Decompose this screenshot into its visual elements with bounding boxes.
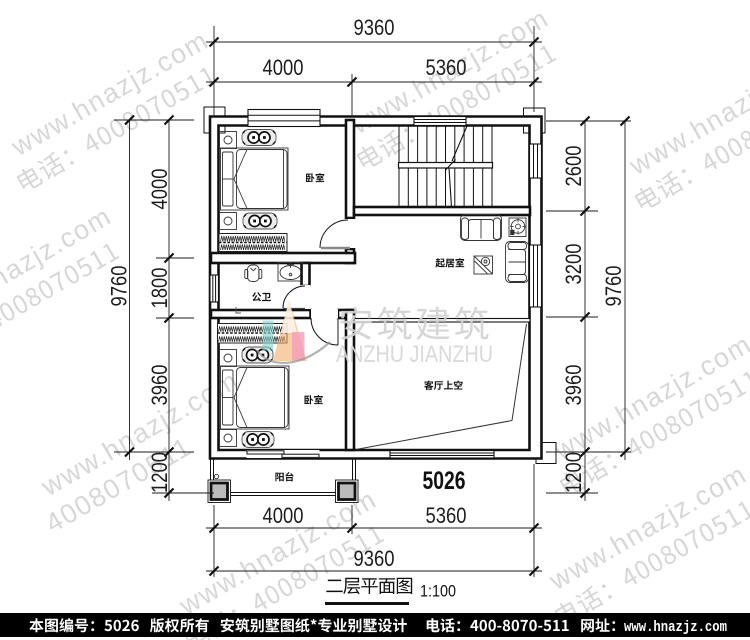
svg-text:1800: 1800 <box>147 268 172 309</box>
svg-text:9760: 9760 <box>601 266 626 307</box>
svg-text:3200: 3200 <box>561 244 586 285</box>
svg-text:1200: 1200 <box>561 452 586 493</box>
svg-text:5360: 5360 <box>426 55 467 80</box>
svg-text:ANZHU JIANZHU: ANZHU JIANZHU <box>336 341 493 368</box>
svg-text:www.hnazjz.com: www.hnazjz.com <box>624 619 727 636</box>
svg-text:9760: 9760 <box>107 266 132 307</box>
svg-text:2600: 2600 <box>561 146 586 187</box>
svg-text:3960: 3960 <box>147 365 172 406</box>
svg-text:4000: 4000 <box>147 169 172 210</box>
svg-text:1200: 1200 <box>147 452 172 493</box>
svg-text:4000: 4000 <box>263 503 304 528</box>
svg-text:1:100: 1:100 <box>420 582 456 601</box>
svg-text:5360: 5360 <box>426 503 467 528</box>
svg-text:9360: 9360 <box>354 15 395 40</box>
svg-text:4000: 4000 <box>263 55 304 80</box>
svg-text:3960: 3960 <box>561 365 586 406</box>
svg-text:9360: 9360 <box>354 546 395 571</box>
svg-text:5026: 5026 <box>423 467 466 495</box>
